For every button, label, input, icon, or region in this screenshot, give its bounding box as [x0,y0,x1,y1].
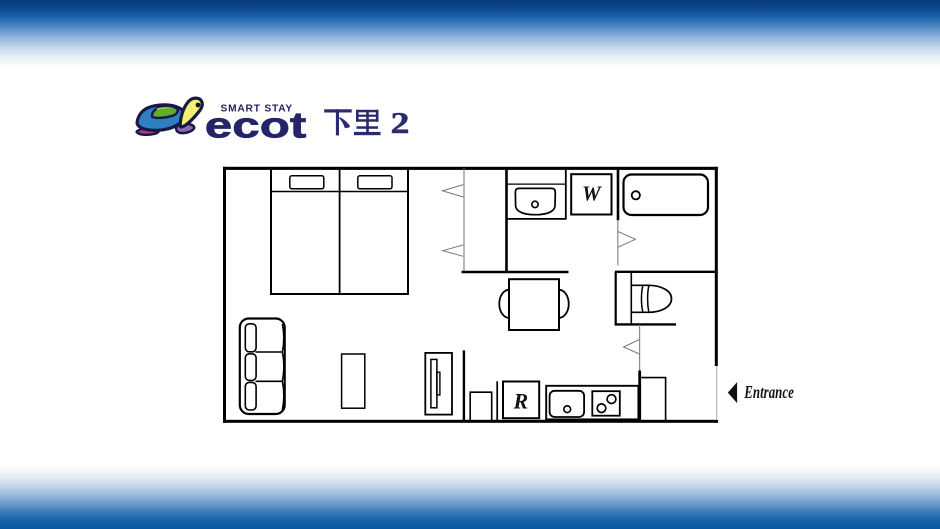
svg-text:Entrance: Entrance [744,382,794,402]
svg-text:W: W [582,182,602,206]
svg-text:R: R [512,389,528,414]
svg-text:2: 2 [391,105,410,140]
svg-text:ecot: ecot [205,104,306,145]
